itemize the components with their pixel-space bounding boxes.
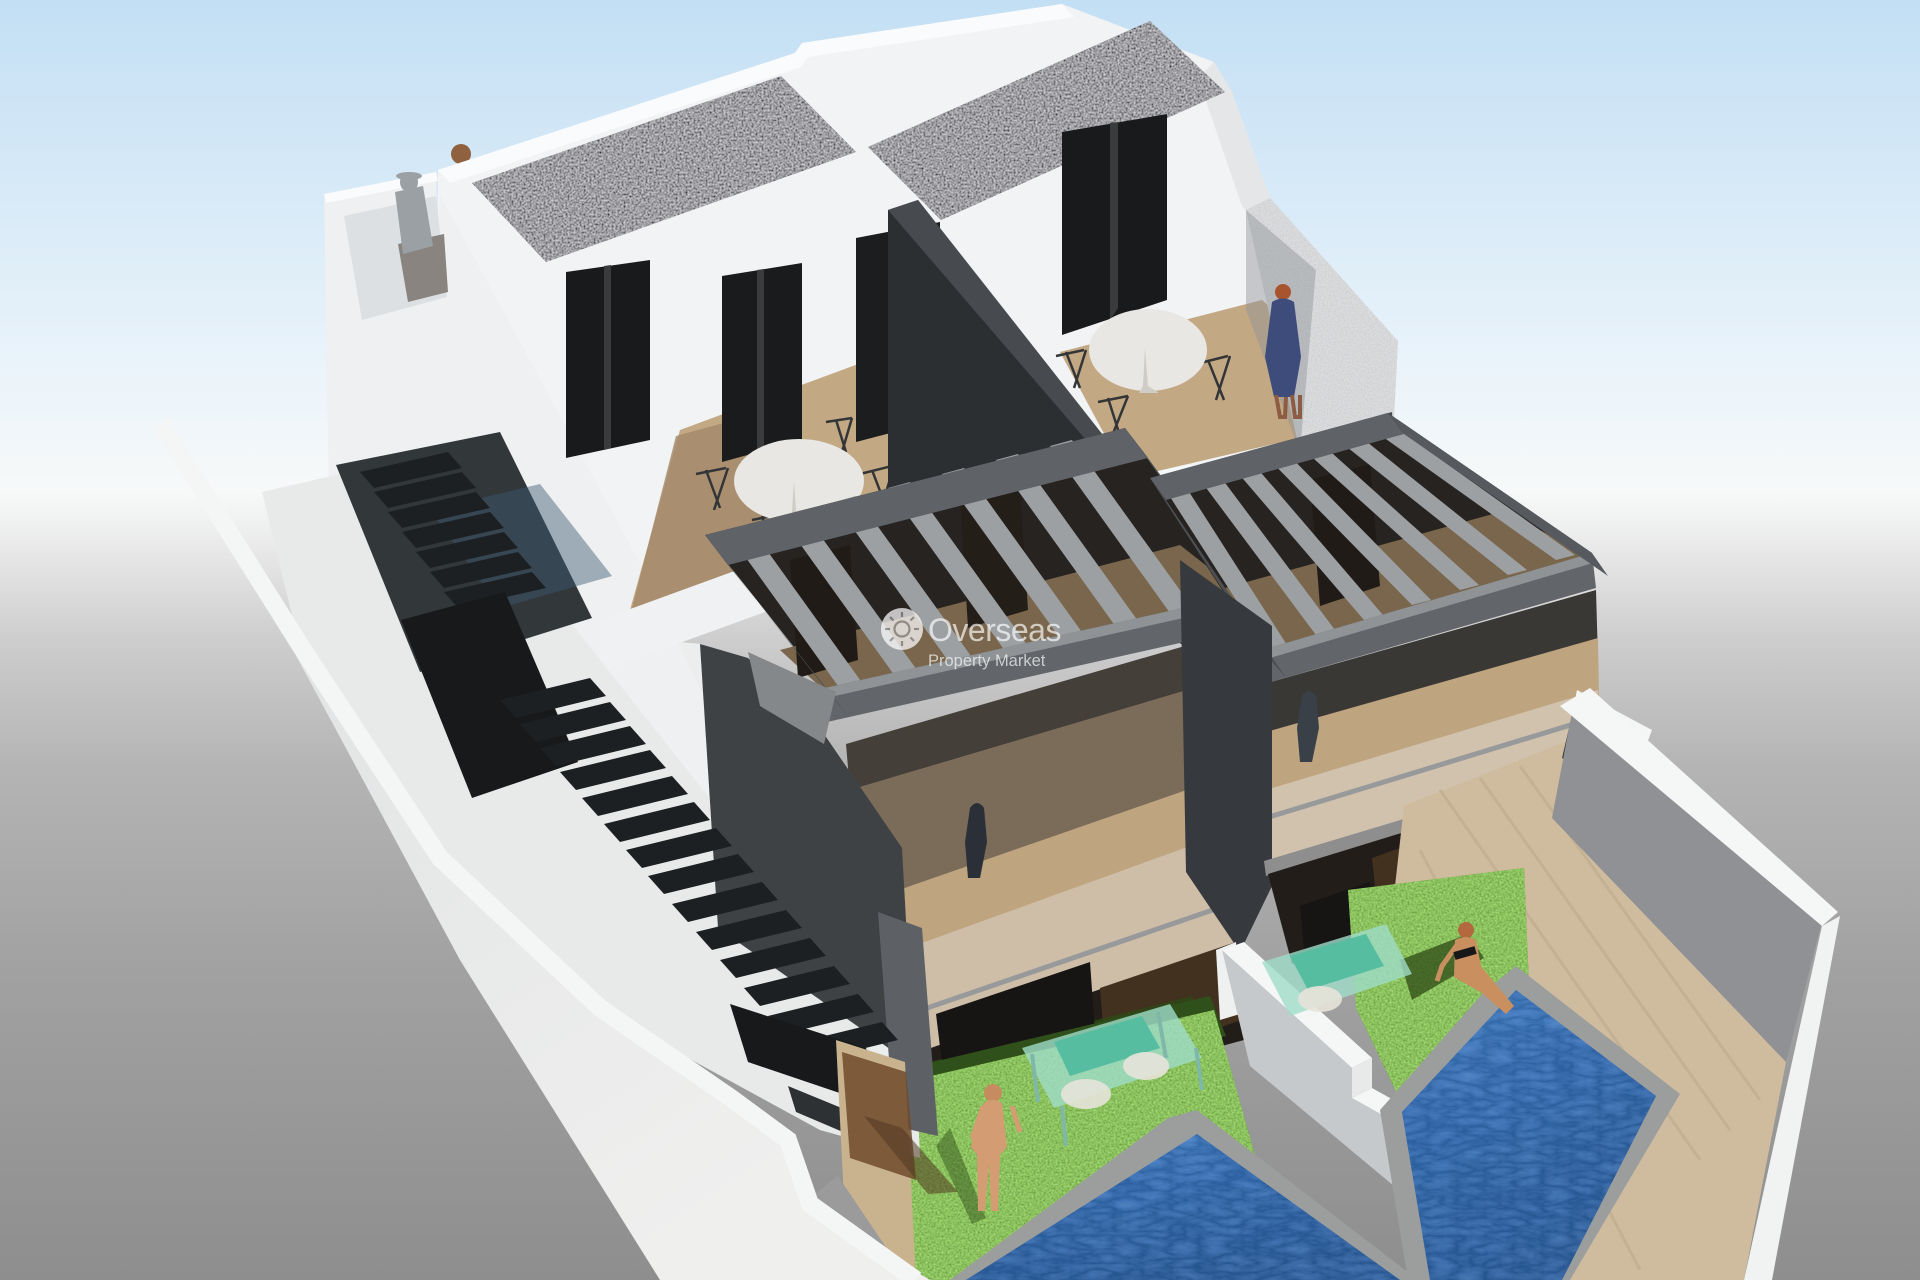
svg-text:Overseas: Overseas — [928, 612, 1061, 648]
svg-text:Property Market: Property Market — [928, 652, 1046, 670]
